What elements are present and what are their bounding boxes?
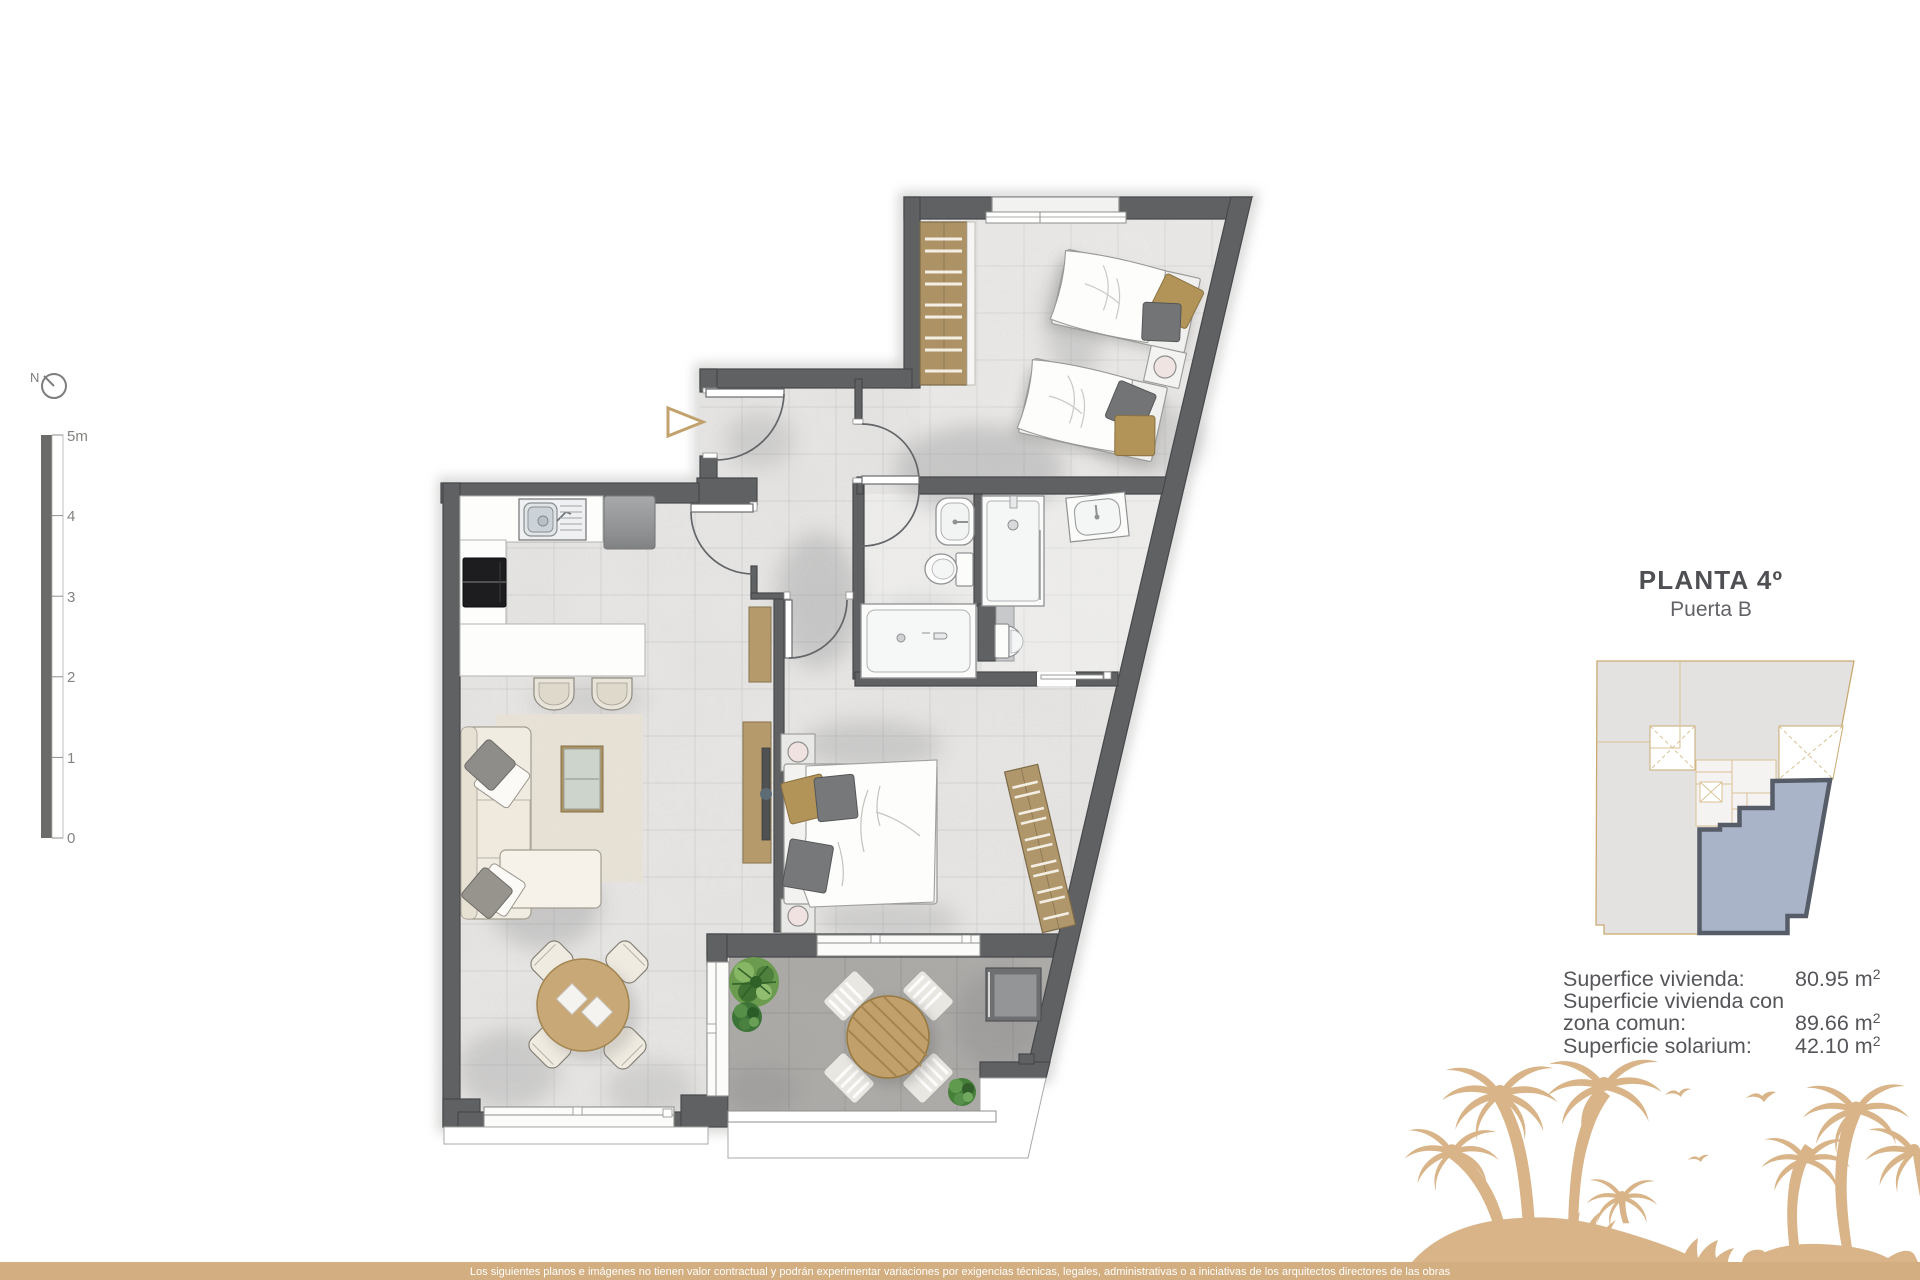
svg-text:0: 0: [67, 830, 75, 847]
svg-text:5m: 5m: [67, 428, 88, 445]
svg-text:80.95 m2: 80.95 m2: [1795, 966, 1881, 991]
svg-text:Puerta B: Puerta B: [1670, 598, 1752, 621]
svg-text:1: 1: [67, 750, 75, 767]
svg-text:2: 2: [67, 669, 75, 686]
svg-text:3: 3: [67, 589, 75, 606]
svg-text:Superfice vivienda:: Superfice vivienda:: [1563, 967, 1745, 991]
svg-text:Los siguientes planos e imágen: Los siguientes planos e imágenes no tien…: [470, 1266, 1451, 1278]
svg-text:4: 4: [67, 508, 75, 525]
svg-text:Superficie solarium:: Superficie solarium:: [1563, 1034, 1752, 1058]
svg-text:N: N: [30, 370, 39, 385]
svg-text:42.10 m2: 42.10 m2: [1795, 1033, 1881, 1058]
svg-text:zona comun:: zona comun:: [1563, 1011, 1686, 1035]
svg-text:Superficie vivienda con: Superficie vivienda con: [1563, 989, 1784, 1013]
svg-text:89.66 m2: 89.66 m2: [1795, 1010, 1881, 1035]
svg-text:PLANTA 4º: PLANTA 4º: [1639, 565, 1784, 595]
